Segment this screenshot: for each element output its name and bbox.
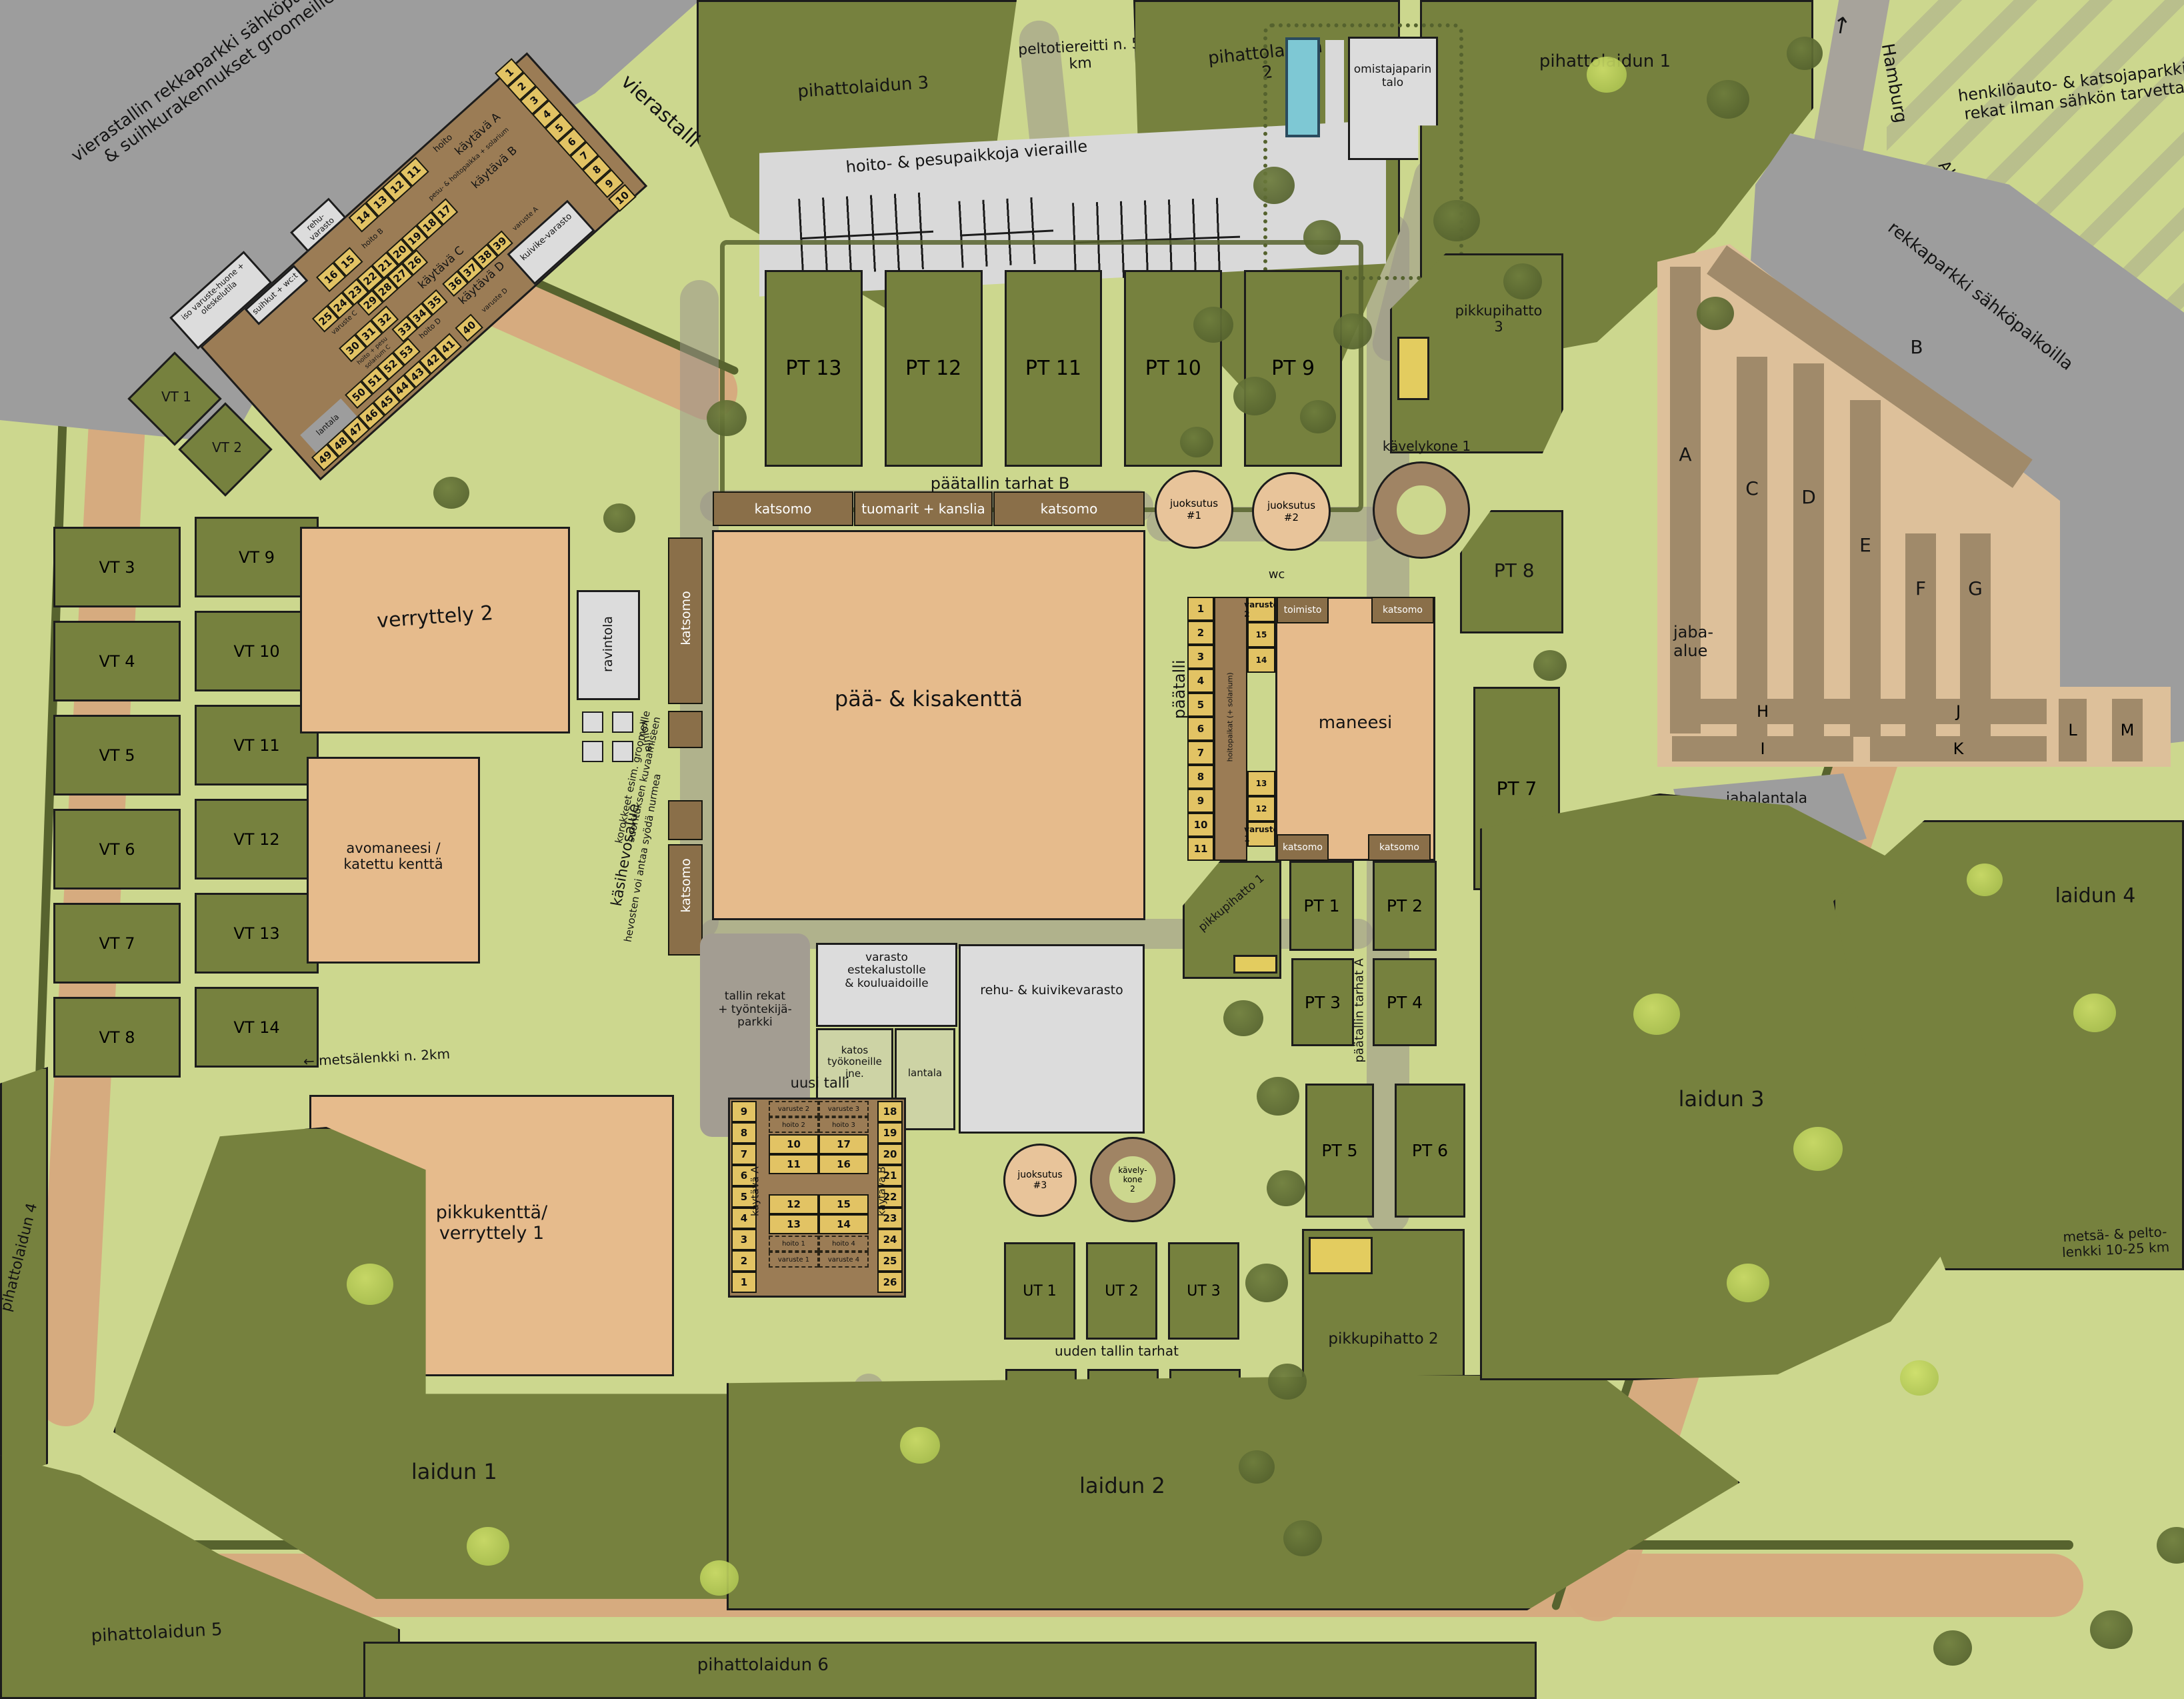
- arena-paa-kisakentta: pää- & kisakenttä: [712, 530, 1145, 920]
- kavelykone-2-line3: 2: [1130, 1184, 1135, 1194]
- tree-icon: [1257, 1077, 1299, 1116]
- maneesi-katsomo-tr: katsomo: [1371, 597, 1434, 623]
- maneesi-katsomo-br: katsomo: [1368, 834, 1431, 861]
- kavelykone-2: kävely-kone2: [1092, 1139, 1173, 1220]
- pt2-label: PT 2: [1387, 896, 1423, 916]
- juoksutus-2: juoksutus#2: [1252, 472, 1331, 551]
- paddock-pt5: PT 5: [1305, 1084, 1374, 1218]
- laidun-4-label: laidun 4: [2026, 885, 2165, 908]
- hoitopaikat-label: hoitopaikat (+ solarium): [1227, 661, 1235, 774]
- shelter-pikkupihatto-1: [1233, 955, 1277, 974]
- pt3-label: PT 3: [1305, 993, 1341, 1012]
- varuste-cell: varuste 2: [769, 1101, 819, 1117]
- jaba-bar-i: I: [1672, 736, 1853, 761]
- paddock-vt: VT 6: [53, 809, 181, 890]
- stall-cell: varuste 1: [1247, 821, 1275, 847]
- tree-icon: [1223, 1000, 1263, 1036]
- bush-icon: [700, 1560, 739, 1596]
- jaba-bar-a-label: A: [1670, 444, 1701, 465]
- uusi-row-2: 1116: [769, 1154, 869, 1174]
- pt-b-label: päätallin tarhat B: [887, 475, 1113, 493]
- pt7-label: PT 7: [1497, 777, 1537, 799]
- pihattolaidun-4-label: pihattolaidun 4: [0, 1172, 49, 1344]
- paddock-vt: VT 8: [53, 997, 181, 1078]
- katsomo-label: katsomo: [1041, 501, 1098, 517]
- wc-label: wc: [1257, 568, 1297, 582]
- pt-a-label: päätallin tarhat A: [1353, 947, 1367, 1074]
- paatalli-right-top: varuste 21514: [1247, 597, 1275, 673]
- jaba-bar-k-label: K: [1953, 739, 1964, 758]
- varasto-line1: varasto: [865, 951, 908, 964]
- jaba-bar-l-label: L: [2068, 721, 2077, 739]
- pikkukentta-line2: verryttely 1: [439, 1223, 544, 1244]
- bldg-kuivikevarasto: kuivike-varasto: [507, 200, 595, 285]
- jaba-bar-m-label: M: [2121, 721, 2135, 739]
- lantala-label: lantala: [898, 1068, 953, 1079]
- stall-cell: 14: [819, 1214, 869, 1234]
- tree-icon: [1245, 1264, 1288, 1302]
- paatalli-stall-column: 1234567891011: [1187, 597, 1214, 861]
- tree-icon: [707, 400, 747, 436]
- arena-verryttely-2: verryttely 2: [300, 527, 570, 733]
- uusi-hoito-bottom: hoito 1hoito 4: [769, 1236, 869, 1252]
- tree-icon: [1283, 1520, 1322, 1556]
- varasto-este-label: varasto estekalustolle & kouluaidoille: [821, 952, 953, 991]
- paddock-pt1: PT 1: [1289, 861, 1354, 951]
- pt-b-paddocks: PT 13PT 12PT 11PT 10PT 9: [765, 270, 1342, 467]
- katsomo-top-left: katsomo: [713, 491, 853, 526]
- stall-cell: 12: [769, 1194, 819, 1214]
- jaba-bar-h: H: [1672, 699, 1853, 724]
- stall-cell: 1: [1187, 597, 1214, 621]
- jaba-bar-g-label: G: [1960, 578, 1991, 599]
- paddock-pt-b: PT 12: [885, 270, 983, 467]
- tree-icon: [1303, 220, 1341, 255]
- stall-cell: 9: [1187, 789, 1214, 813]
- paddock-pt3: PT 3: [1291, 958, 1354, 1046]
- pikkupihatto-3-label: pikkupihatto 3: [1439, 303, 1558, 335]
- ravintola-label: ravintola: [601, 591, 616, 697]
- stall-cell: 8: [1187, 765, 1214, 789]
- paddock-vt: VT 7: [53, 903, 181, 984]
- staff-parking-line2: + työntekijä-: [718, 1003, 792, 1016]
- jaba-bar-d: D: [1793, 363, 1824, 737]
- stall-cell: 12: [1247, 796, 1275, 821]
- verryttely-2-label: verryttely 2: [328, 598, 542, 636]
- toimisto: toimisto: [1277, 597, 1329, 623]
- tree-icon: [1707, 80, 1749, 119]
- rehu-kuivike-label: rehu- & kuivikevarasto: [964, 984, 1139, 998]
- pihattolaidun-6-label: pihattolaidun 6: [623, 1656, 903, 1676]
- vt1-label: VT 1: [145, 389, 208, 405]
- owner-house-line2: talo: [1382, 76, 1403, 89]
- tree-icon: [1239, 1450, 1275, 1484]
- paatalli-right-bottom: 1312varuste 1: [1247, 771, 1275, 847]
- paatalli-maneesi-complex: 1234567891011 hoitopaikat (+ solarium) v…: [1183, 592, 1437, 868]
- jaba-alue-label: jaba- alue: [1673, 623, 1747, 660]
- stall-cell: 10: [1187, 813, 1214, 837]
- jaba-bar-d-label: D: [1793, 487, 1824, 508]
- bush-icon: [2073, 994, 2116, 1032]
- paddock-vt: VT 3: [53, 527, 181, 607]
- jaba-bar-b-label: B: [1900, 337, 1933, 358]
- pt5-label: PT 5: [1321, 1141, 1357, 1160]
- stall-cell: 2: [1187, 621, 1214, 645]
- stall-cell: 11: [769, 1154, 819, 1174]
- avomaneesi-line1: avomaneesi /: [346, 840, 440, 856]
- tree-icon: [1697, 297, 1734, 330]
- uusi-row-3: 1215: [769, 1194, 869, 1214]
- groom-platform: [668, 711, 703, 748]
- juoksutus-3-line1: juoksutus: [1017, 1170, 1062, 1180]
- stall-cell: 16: [819, 1154, 869, 1174]
- tuomarit-label: tuomarit + kanslia: [861, 501, 985, 517]
- uusi-varuste-top: varuste 2varuste 3: [769, 1101, 869, 1117]
- juoksutus-1: juoksutus#1: [1155, 470, 1233, 549]
- tree-icon: [1253, 167, 1295, 204]
- arena-avomaneesi: avomaneesi / katettu kenttä: [307, 757, 480, 964]
- tree-icon: [433, 477, 469, 509]
- owner-house-label: omistajaparin talo: [1353, 63, 1432, 89]
- stall-cell: 13: [1247, 771, 1275, 796]
- staff-parking-line3: parkki: [737, 1016, 773, 1029]
- avomaneesi-label: avomaneesi / katettu kenttä: [312, 840, 475, 872]
- kojut-stand: [582, 741, 603, 762]
- bush-icon: [1967, 864, 2003, 896]
- uusi-talli-title: uusi talli: [753, 1075, 887, 1091]
- tree-icon: [1180, 427, 1213, 457]
- pihattolaidun-3-label: pihattolaidun 3: [745, 70, 983, 107]
- jaba-bar-e-label: E: [1850, 535, 1881, 556]
- uusi-varuste-bottom: varuste 1varuste 4: [769, 1252, 869, 1268]
- stall-cell: 13: [769, 1214, 819, 1234]
- katsomo-label: katsomo: [1379, 842, 1419, 853]
- jaba-bar-m: M: [2112, 699, 2143, 761]
- stall-cell: 11: [1187, 837, 1214, 861]
- laidun-2-label: laidun 2: [1031, 1474, 1213, 1498]
- kavelykone-2-line2: kone: [1123, 1175, 1143, 1184]
- jaba-bar-e: E: [1850, 400, 1881, 737]
- uusi-talli-complex: 987654321 181920212223242526 käytävä A k…: [728, 1098, 906, 1298]
- tree-icon: [1333, 313, 1372, 349]
- staff-parking-label: tallin rekat + työntekijä- parkki: [702, 990, 807, 1030]
- stall-cell: 1: [731, 1272, 757, 1293]
- bush-icon: [467, 1527, 509, 1566]
- paddock-pt-b: PT 13: [765, 270, 863, 467]
- ut-label: uuden tallin tarhat: [997, 1344, 1237, 1359]
- juoksutus-2-line2: #2: [1284, 511, 1299, 523]
- varasto-line2: estekalustolle: [847, 964, 926, 977]
- stall-cell: 10: [769, 1134, 819, 1154]
- katsomo-label: katsomo: [1283, 842, 1323, 853]
- pt4-label: PT 4: [1387, 993, 1423, 1012]
- tree-icon: [1933, 1630, 1972, 1666]
- stall-cell: 14: [1247, 647, 1275, 673]
- tree-icon: [1503, 263, 1542, 299]
- stall-cell: 3: [1187, 645, 1214, 669]
- paddock-pt2: PT 2: [1373, 861, 1437, 951]
- pikkupihatto-2-label: pikkupihatto 2: [1311, 1330, 1457, 1348]
- toimisto-label: toimisto: [1284, 605, 1322, 615]
- paddock-ut: UT 3: [1168, 1242, 1239, 1340]
- stall-cell: 26: [877, 1272, 903, 1293]
- stall-cell: 8: [731, 1122, 757, 1144]
- stall-cell: varuste 2: [1247, 597, 1275, 622]
- uusi-kaytava-a: käytävä A: [749, 1152, 761, 1232]
- tuomarit-kanslia: tuomarit + kanslia: [854, 491, 993, 526]
- house-terrace: [1325, 40, 1344, 140]
- stall-cell: 15: [1247, 622, 1275, 647]
- hoito-cell: hoito 4: [819, 1236, 869, 1252]
- stall-cell: 3: [731, 1229, 757, 1250]
- maneesi-label: maneesi: [1293, 713, 1417, 733]
- jaba-bar-h-label: H: [1757, 702, 1769, 721]
- jaba-bar-j-label: J: [1956, 702, 1961, 721]
- uusi-kaytava-b: käytävä B: [876, 1152, 887, 1232]
- tree-icon: [1193, 307, 1233, 343]
- stall-cell: 24: [877, 1229, 903, 1250]
- pt6-label: PT 6: [1412, 1141, 1448, 1160]
- juoksutus-3: juoksutus#3: [1003, 1144, 1077, 1217]
- bldg-varasto-este: varasto estekalustolle & kouluaidoille: [816, 943, 957, 1027]
- laidun-3-label: laidun 3: [1655, 1087, 1788, 1112]
- kojut-stand: [582, 711, 603, 733]
- pikkupihatto-1-label: pikkupihatto 1: [1189, 866, 1275, 942]
- hoito-cell: hoito 2: [769, 1117, 819, 1133]
- pikkupihatto-3-line1: pikkupihatto: [1455, 303, 1543, 319]
- paddock-ut: UT 2: [1086, 1242, 1157, 1340]
- stall-cell: 6: [1187, 717, 1214, 741]
- bush-icon: [1633, 994, 1680, 1035]
- uusi-row-4: 1314: [769, 1214, 869, 1234]
- shelter-pikkupihatto-3: [1397, 337, 1429, 400]
- hamburg-arrow: ↑: [1826, 11, 1857, 41]
- paa-kisakentta-label: pää- & kisakenttä: [757, 687, 1100, 711]
- juoksutus-1-line1: juoksutus: [1170, 497, 1218, 509]
- varuste-cell: varuste 4: [819, 1252, 869, 1268]
- jaba-bar-a: A: [1670, 267, 1701, 733]
- paddock-ut: UT 1: [1004, 1242, 1075, 1340]
- varasto-line3: & kouluaidoille: [845, 977, 929, 990]
- katsomo-label: katsomo: [679, 565, 694, 671]
- bldg-ravintola: ravintola: [577, 590, 640, 700]
- pt8-label: PT 8: [1472, 560, 1557, 581]
- stall-cell: 25: [877, 1250, 903, 1272]
- swimming-pool: [1285, 37, 1320, 137]
- tree-icon: [1787, 37, 1823, 70]
- stall-cell: 17: [819, 1134, 869, 1154]
- tree-icon: [2157, 1527, 2184, 1564]
- pihattolaidun-5-label: pihattolaidun 5: [33, 1617, 279, 1650]
- bush-icon: [900, 1427, 940, 1464]
- vt2-label: VT 2: [196, 440, 259, 455]
- area-pihattolaidun-4: pihattolaidun 4: [0, 1067, 48, 1480]
- pikkukentta-line1: pikkukenttä/: [436, 1202, 547, 1223]
- kojut-stand: [612, 711, 633, 733]
- stall-cell: 18: [877, 1101, 903, 1122]
- hoito-cell: hoito 1: [769, 1236, 819, 1252]
- tree-icon: [1268, 1364, 1307, 1400]
- paddock-vt: VT 5: [53, 715, 181, 795]
- katsomo-label: katsomo: [755, 501, 812, 517]
- bush-icon: [347, 1264, 393, 1305]
- paddock-pt-b: PT 11: [1005, 270, 1103, 467]
- katsomo-west-1: katsomo: [668, 537, 703, 704]
- uusi-hoito-top: hoito 2hoito 3: [769, 1117, 869, 1133]
- maneesi-hall: maneesi: [1275, 597, 1435, 861]
- stall-cell: 2: [731, 1250, 757, 1272]
- stall-cell: 15: [819, 1194, 869, 1214]
- jaba-alue-line2: alue: [1673, 641, 1707, 660]
- stall-cell: 7: [1187, 741, 1214, 765]
- jaba-bar-j: J: [1870, 699, 2047, 724]
- paddock-vt: VT 12: [195, 799, 319, 880]
- jaba-bar-i-label: I: [1760, 739, 1765, 758]
- tree-icon: [1233, 377, 1276, 415]
- pt1-label: PT 1: [1303, 896, 1339, 916]
- tree-icon: [2090, 1610, 2133, 1649]
- juoksutus-2-line1: juoksutus: [1267, 499, 1315, 511]
- laidun-1-label: laidun 1: [369, 1460, 539, 1484]
- maneesi-katsomo-bl: katsomo: [1277, 834, 1329, 861]
- stall-cell: 19: [877, 1122, 903, 1144]
- paddock-pt8: PT 8: [1460, 510, 1563, 633]
- jaba-bar-l: L: [2059, 699, 2087, 761]
- jaba-bar-f-label: F: [1905, 578, 1936, 599]
- bush-icon: [1727, 1264, 1769, 1302]
- kavelykone-1-label: kävelykone 1: [1360, 439, 1493, 454]
- paddock-pt4: PT 4: [1373, 958, 1437, 1046]
- tree-icon: [603, 503, 635, 533]
- ut-row-1: UT 1UT 2UT 3: [1004, 1242, 1239, 1340]
- owner-house-line1: omistajaparin: [1354, 63, 1431, 76]
- bush-icon: [1900, 1360, 1939, 1396]
- juoksutus-1-line2: #1: [1187, 509, 1201, 521]
- katsomo-label: katsomo: [1383, 605, 1423, 615]
- peltotiereitti-label: peltotiereitti n. 5 km: [1013, 35, 1147, 76]
- kavelykone-2-line1: kävely-: [1118, 1166, 1147, 1175]
- stall-cell: 9: [731, 1101, 757, 1122]
- varuste-cell: varuste 1: [769, 1252, 819, 1268]
- bush-icon: [1793, 1127, 1843, 1171]
- tree-icon: [1300, 400, 1336, 433]
- bldg-rehu-kuivike: rehu- & kuivikevarasto: [959, 944, 1145, 1134]
- paddock-vt: VT 4: [53, 621, 181, 701]
- stall-cell: 5: [1187, 693, 1214, 717]
- paatalli-aisle: hoitopaikat (+ solarium): [1214, 597, 1247, 861]
- katsomo-top-right: katsomo: [993, 491, 1145, 526]
- katsomo-west-2: katsomo: [668, 844, 703, 956]
- tree-icon: [1433, 200, 1480, 241]
- varuste-cell: varuste 3: [819, 1101, 869, 1117]
- staff-parking-line1: tallin rekat: [725, 990, 785, 1003]
- jaba-alue-line1: jaba-: [1673, 623, 1713, 641]
- katsomo-label: katsomo: [679, 832, 694, 939]
- katos-line1: katos: [841, 1044, 869, 1056]
- tree-icon: [1267, 1170, 1305, 1206]
- avomaneesi-line2: katettu kenttä: [343, 856, 443, 872]
- katos-line2: työkoneille: [827, 1056, 882, 1068]
- area-pihattolaidun-6: pihattolaidun 6: [363, 1642, 1537, 1699]
- uusi-row-1: 1017: [769, 1134, 869, 1154]
- bush-icon: [1587, 57, 1627, 93]
- stall-cell: 4: [1187, 669, 1214, 693]
- juoksutus-3-line2: #3: [1033, 1180, 1047, 1191]
- paddock-pt6: PT 6: [1395, 1084, 1465, 1218]
- shelter-pikkupihatto-2a: [1309, 1237, 1373, 1274]
- kavelykone-1: [1375, 463, 1468, 557]
- jaba-bar-c-label: C: [1737, 478, 1767, 499]
- paddock-pt-b: PT 9: [1244, 270, 1342, 467]
- site-map: vierastallin rekkaparkki sähköpaikkoinee…: [0, 0, 2184, 1699]
- stall-40: 40: [455, 313, 483, 341]
- pikkupihatto-3-line2: 3: [1494, 319, 1503, 335]
- jaba-bar-c: C: [1737, 357, 1767, 737]
- paddock-vt: VT 13: [195, 893, 319, 974]
- tree-icon: [1533, 650, 1567, 681]
- hoito-cell: hoito 3: [819, 1117, 869, 1133]
- jaba-bar-k: K: [1870, 736, 2047, 761]
- vt-column-1: VT 3VT 4VT 5VT 6VT 7VT 8: [53, 527, 181, 1078]
